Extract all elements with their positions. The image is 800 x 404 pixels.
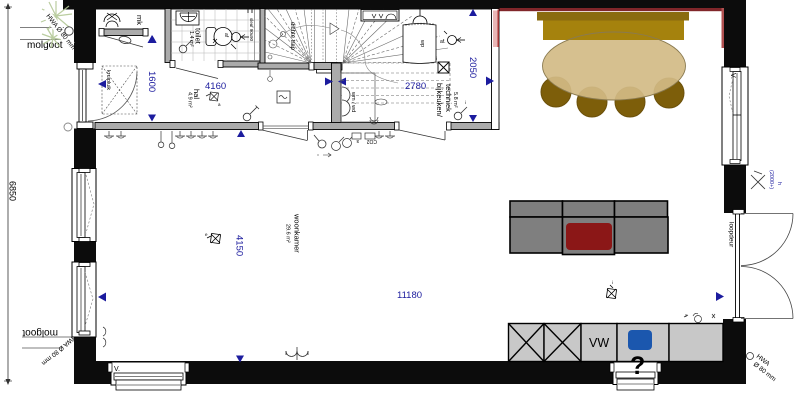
svg-text:af.: af. [440,39,446,45]
svg-text:(2000+): (2000+) [768,170,774,189]
svg-text:i: i [465,100,466,105]
svg-text:bijkeuken/: bijkeuken/ [435,83,444,118]
svg-text:sleuf 90x90: sleuf 90x90 [249,18,254,42]
svg-text:mk: mk [135,15,144,25]
svg-text:4160: 4160 [205,81,226,92]
svg-text:5.8 m²: 5.8 m² [452,92,458,108]
svg-text:CO2: CO2 [367,138,378,144]
svg-text:?: ? [630,352,645,380]
svg-text:2780: 2780 [405,81,426,92]
svg-text:V.: V. [729,73,736,79]
svg-text:4.9 m²: 4.9 m² [187,92,193,108]
svg-text:woonkamer: woonkamer [293,213,302,253]
svg-text:molgoot: molgoot [27,40,63,51]
svg-text:V.: V. [114,366,120,373]
svg-text:h: h [776,182,782,185]
svg-text:dichte trap: dichte trap [289,22,295,51]
svg-text:11180: 11180 [397,290,422,301]
svg-text:loopdeur: loopdeur [728,222,735,248]
svg-text:techniek: techniek [444,84,453,112]
svg-text:molgoot: molgoot [22,327,58,338]
svg-text:6850: 6850 [8,181,18,201]
svg-text:1600: 1600 [146,71,157,92]
svg-text:29.6 m²: 29.6 m² [285,224,291,243]
svg-text:2050: 2050 [467,57,478,78]
svg-text:i: i [612,280,613,285]
svg-text:4150: 4150 [234,235,245,256]
svg-text:wm / wd: wm / wd [350,91,356,112]
svg-text:1.4 m²: 1.4 m² [188,31,194,47]
svg-text:VW: VW [589,336,609,350]
svg-text:i: i [436,56,437,61]
svg-text:wp: wp [419,39,425,47]
svg-text:af: af [223,33,229,38]
